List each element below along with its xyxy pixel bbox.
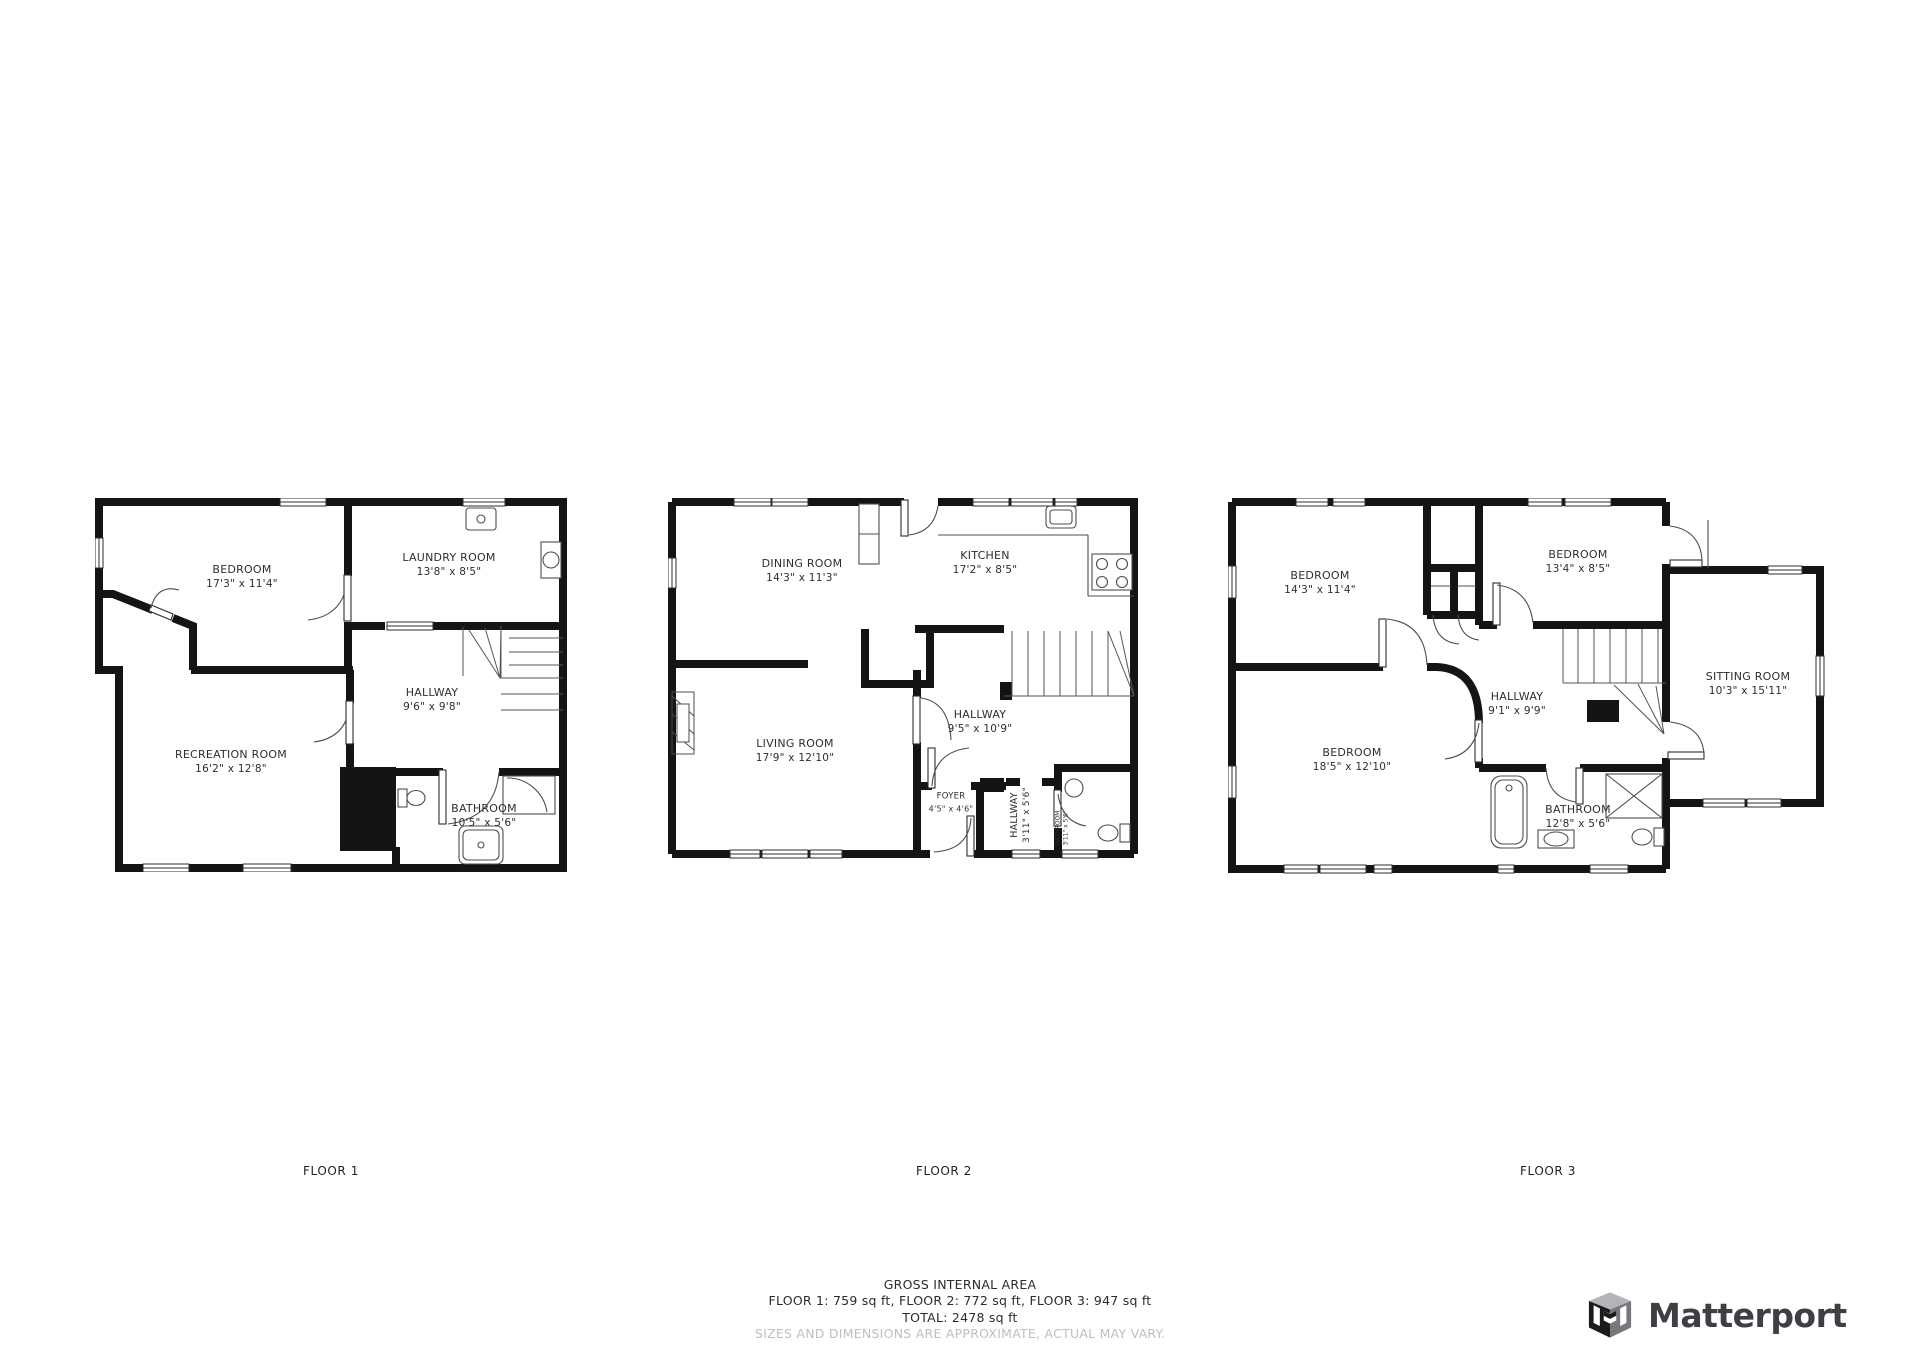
room-label-bedroom: BEDROOM18'5" x 12'10": [1313, 745, 1392, 775]
room-name: BEDROOM: [1284, 568, 1356, 583]
room-label-hallway: HALLWAY3'11" x 5'6": [1008, 787, 1034, 843]
matterport-logo-text: Matterport: [1648, 1296, 1847, 1335]
room-name: RECREATION ROOM: [175, 747, 287, 762]
room-label-bedroom: BEDROOM13'4" x 8'5": [1546, 547, 1611, 577]
room-dimensions: 13'4" x 8'5": [1546, 562, 1611, 577]
room-name: KITCHEN: [953, 548, 1018, 563]
room-dimensions: 17'3" x 11'4": [206, 577, 278, 592]
room-name: HALLWAY: [1488, 689, 1546, 704]
room-name: HALLWAY: [1008, 787, 1021, 843]
room-dimensions: 9'6" x 9'8": [403, 700, 461, 715]
room-name: BATHROOM: [1055, 810, 1063, 845]
floor-caption-floor-2: FLOOR 2: [916, 1164, 972, 1178]
room-name: BATHROOM: [1545, 802, 1611, 817]
room-label-bedroom: BEDROOM14'3" x 11'4": [1284, 568, 1356, 598]
room-dimensions: 14'3" x 11'3": [762, 571, 843, 586]
floorplan-page: BEDROOM17'3" x 11'4"LAUNDRY ROOM13'8" x …: [0, 0, 1920, 1357]
room-label-bathroom: BATHROOM12'8" x 5'6": [1545, 802, 1611, 832]
room-name: BEDROOM: [206, 562, 278, 577]
room-label-hallway: HALLWAY9'1" x 9'9": [1488, 689, 1546, 719]
room-label-foyer: FOYER4'5" x 4'6": [929, 791, 974, 814]
room-dimensions: 10'3" x 15'11": [1706, 684, 1790, 699]
room-dimensions: 18'5" x 12'10": [1313, 760, 1392, 775]
room-name: BEDROOM: [1313, 745, 1392, 760]
room-name: SITTING ROOM: [1706, 669, 1790, 684]
room-name: LAUNDRY ROOM: [402, 550, 495, 565]
room-label-bathroom: BATHROOM3'11" x 5'6": [1055, 810, 1070, 845]
room-label-recreation-room: RECREATION ROOM16'2" x 12'8": [175, 747, 287, 777]
room-label-laundry-room: LAUNDRY ROOM13'8" x 8'5": [402, 550, 495, 580]
room-dimensions: 13'8" x 8'5": [402, 565, 495, 580]
room-dimensions: 4'5" x 4'6": [929, 803, 974, 814]
room-label-living-room: LIVING ROOM17'9" x 12'10": [756, 736, 835, 766]
room-dimensions: 17'2" x 8'5": [953, 563, 1018, 578]
room-name: BATHROOM: [451, 801, 517, 816]
room-label-bedroom: BEDROOM17'3" x 11'4": [206, 562, 278, 592]
room-name: HALLWAY: [403, 685, 461, 700]
room-label-kitchen: KITCHEN17'2" x 8'5": [953, 548, 1018, 578]
room-name: DINING ROOM: [762, 556, 843, 571]
room-dimensions: 9'1" x 9'9": [1488, 704, 1546, 719]
room-label-bathroom: BATHROOM10'5" x 5'6": [451, 801, 517, 831]
matterport-logo: Matterport: [1585, 1288, 1847, 1342]
room-dimensions: 16'2" x 12'8": [175, 762, 287, 777]
room-dimensions: 17'9" x 12'10": [756, 751, 835, 766]
floor-caption-floor-3: FLOOR 3: [1520, 1164, 1576, 1178]
room-name: LIVING ROOM: [756, 736, 835, 751]
room-name: HALLWAY: [948, 707, 1013, 722]
room-dimensions: 3'11" x 5'6": [1021, 787, 1034, 843]
room-label-hallway: HALLWAY9'6" x 9'8": [403, 685, 461, 715]
room-name: BEDROOM: [1546, 547, 1611, 562]
room-dimensions: 10'5" x 5'6": [451, 816, 517, 831]
matterport-logo-icon: [1585, 1290, 1635, 1340]
room-dimensions: 12'8" x 5'6": [1545, 817, 1611, 832]
room-name: FOYER: [929, 791, 974, 803]
room-label-dining-room: DINING ROOM14'3" x 11'3": [762, 556, 843, 586]
room-dimensions: 3'11" x 5'6": [1062, 810, 1070, 845]
room-dimensions: 9'5" x 10'9": [948, 722, 1013, 737]
room-dimensions: 14'3" x 11'4": [1284, 583, 1356, 598]
floor-caption-floor-1: FLOOR 1: [303, 1164, 359, 1178]
room-labels-layer: BEDROOM17'3" x 11'4"LAUNDRY ROOM13'8" x …: [0, 0, 1920, 1357]
room-label-hallway: HALLWAY9'5" x 10'9": [948, 707, 1013, 737]
room-label-sitting-room: SITTING ROOM10'3" x 15'11": [1706, 669, 1790, 699]
